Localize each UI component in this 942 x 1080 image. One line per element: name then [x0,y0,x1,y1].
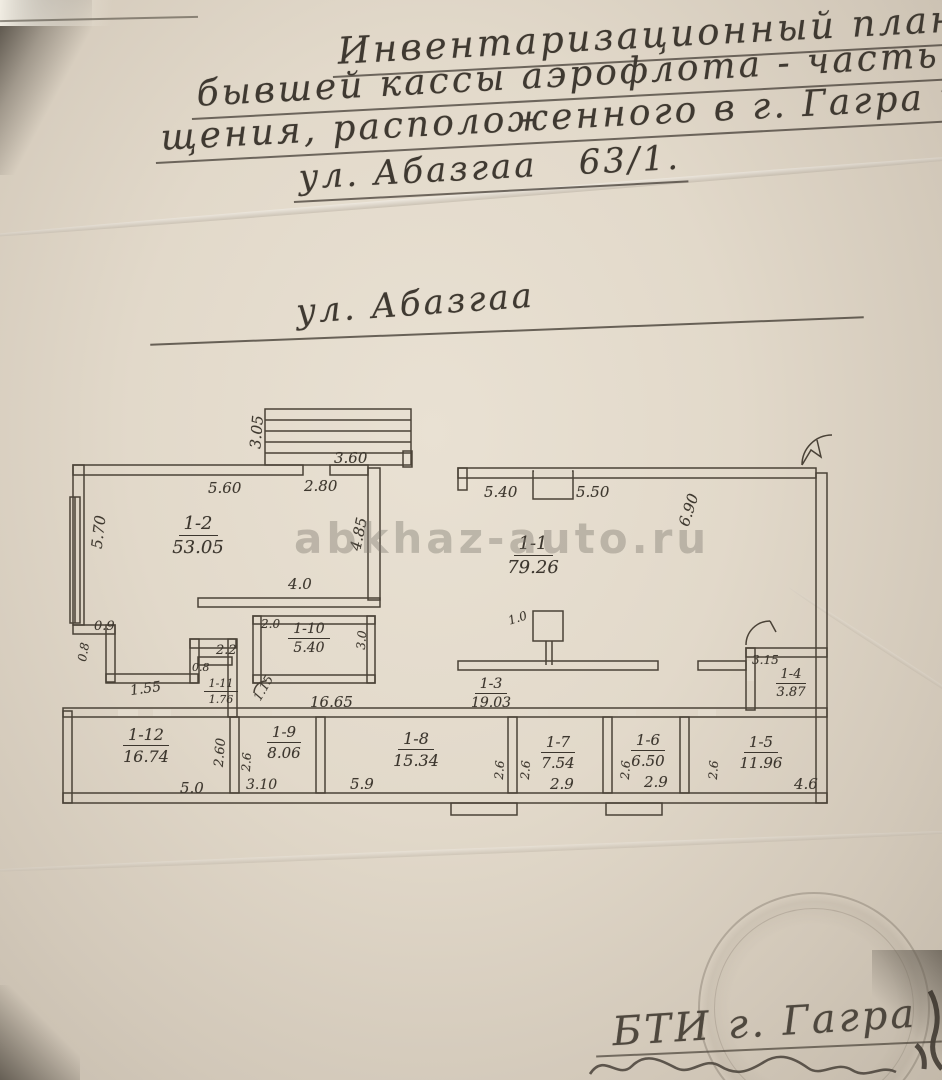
room-number: 1-10 [288,621,329,639]
room-label: 1-12 16.74 [106,725,186,766]
room-label: 1-7 7.54 [526,733,590,772]
dimension-label: 3.10 [246,777,277,793]
paper-crease [0,827,942,875]
dimension-label: 2.0 [261,617,280,631]
dark-corner-bottom-left [0,985,80,1080]
watermark: abkhaz-auto.ru [294,514,710,563]
room-area: 6.50 [631,751,664,770]
room-number: 1-4 [776,667,807,684]
dimension-label: 4.0 [288,575,312,593]
room-area: 5.40 [293,639,324,656]
room-number: 1-9 [267,723,301,743]
dimension-label: 5.40 [484,483,517,501]
dimension-label: 4.6 [794,775,818,793]
room-number: 1-8 [398,729,434,750]
street-underline [150,316,864,345]
dimension-label: 3.0 [354,630,370,650]
room-label: 1-5 11.96 [726,733,796,772]
dimension-label: 5.60 [208,479,241,497]
room-label: 1-3 19.03 [456,676,526,711]
dimension-label: 16.65 [310,693,353,711]
scanned-floor-plan-document: Инвентаризационный план здан бывшей касс… [0,0,942,1080]
room-number: 1-7 [541,733,575,753]
room-label: 1-2 53.05 [158,513,238,558]
room-number: 1-3 [475,676,508,694]
dimension-label: 2.6 [492,760,507,780]
dimension-label: 3.15 [752,653,779,667]
window [70,497,80,623]
dimension-label: 3.05 [246,415,267,450]
room-area: 1.76 [209,692,234,706]
dimension-label: 2.6 [618,760,633,780]
dimension-label: 0.9 [94,619,115,634]
dark-corner-top-left [0,0,92,175]
dimension-label: 2.2 [216,643,237,658]
entrance-steps [451,803,662,815]
dimension-label: 5.0 [180,779,204,797]
room-area: 53.05 [172,536,224,558]
room-label: 1-11 1.76 [198,677,244,706]
room-number: 1-2 [179,513,218,536]
street-label: ул. Абазгаа [295,276,536,333]
paper-edge-sliver [0,0,160,26]
room-area: 8.06 [267,743,300,762]
room-label: 1-9 8.06 [254,723,314,762]
dimension-label: 2.6 [706,760,721,780]
dimension-label: 2.60 [212,737,229,767]
room-number: 1-11 [204,677,239,692]
dimension-label: 2.9 [550,775,574,793]
dimension-label: 2.6 [518,760,533,780]
dimension-label: 3.60 [334,449,367,467]
room-area: 16.74 [123,746,169,766]
signature-scribble [584,1050,924,1080]
room-area: 7.54 [541,753,574,772]
room-label: 1-8 15.34 [376,729,456,770]
dimension-label: 2.80 [304,477,337,495]
room-area: 15.34 [393,750,439,770]
room-area: 11.96 [740,753,783,772]
dimension-label: 5.9 [350,775,374,793]
dimension-label: 2.6 [239,752,254,772]
room-area: 3.87 [777,684,806,700]
room-label: 1-4 3.87 [764,667,818,700]
room-number: 1-12 [123,725,169,746]
room-number: 1-6 [631,731,665,751]
floor-plan: 1-2 53.05 1-1 79.26 1-10 5.40 1-11 1.76 … [58,393,848,823]
room-area: 19.03 [471,694,511,711]
column [533,611,563,665]
dimension-label: 2.9 [644,773,668,791]
room-label: 1-10 5.40 [276,621,342,656]
dimension-label: 5.50 [576,483,609,501]
room-number: 1-5 [744,733,778,753]
dimension-label: 0.8 [192,661,210,674]
